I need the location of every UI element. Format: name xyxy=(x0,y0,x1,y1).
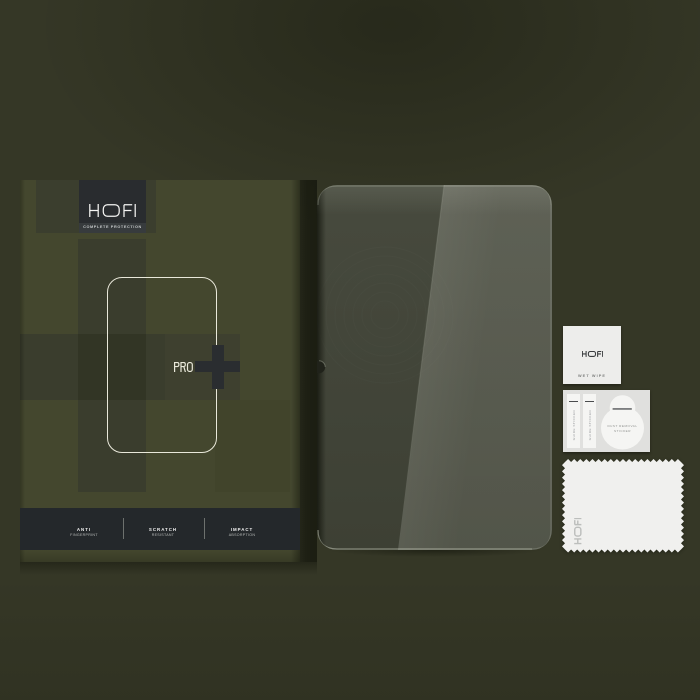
svg-text:DUST REMOVAL: DUST REMOVAL xyxy=(607,424,637,428)
svg-text:STICKER: STICKER xyxy=(614,429,631,433)
